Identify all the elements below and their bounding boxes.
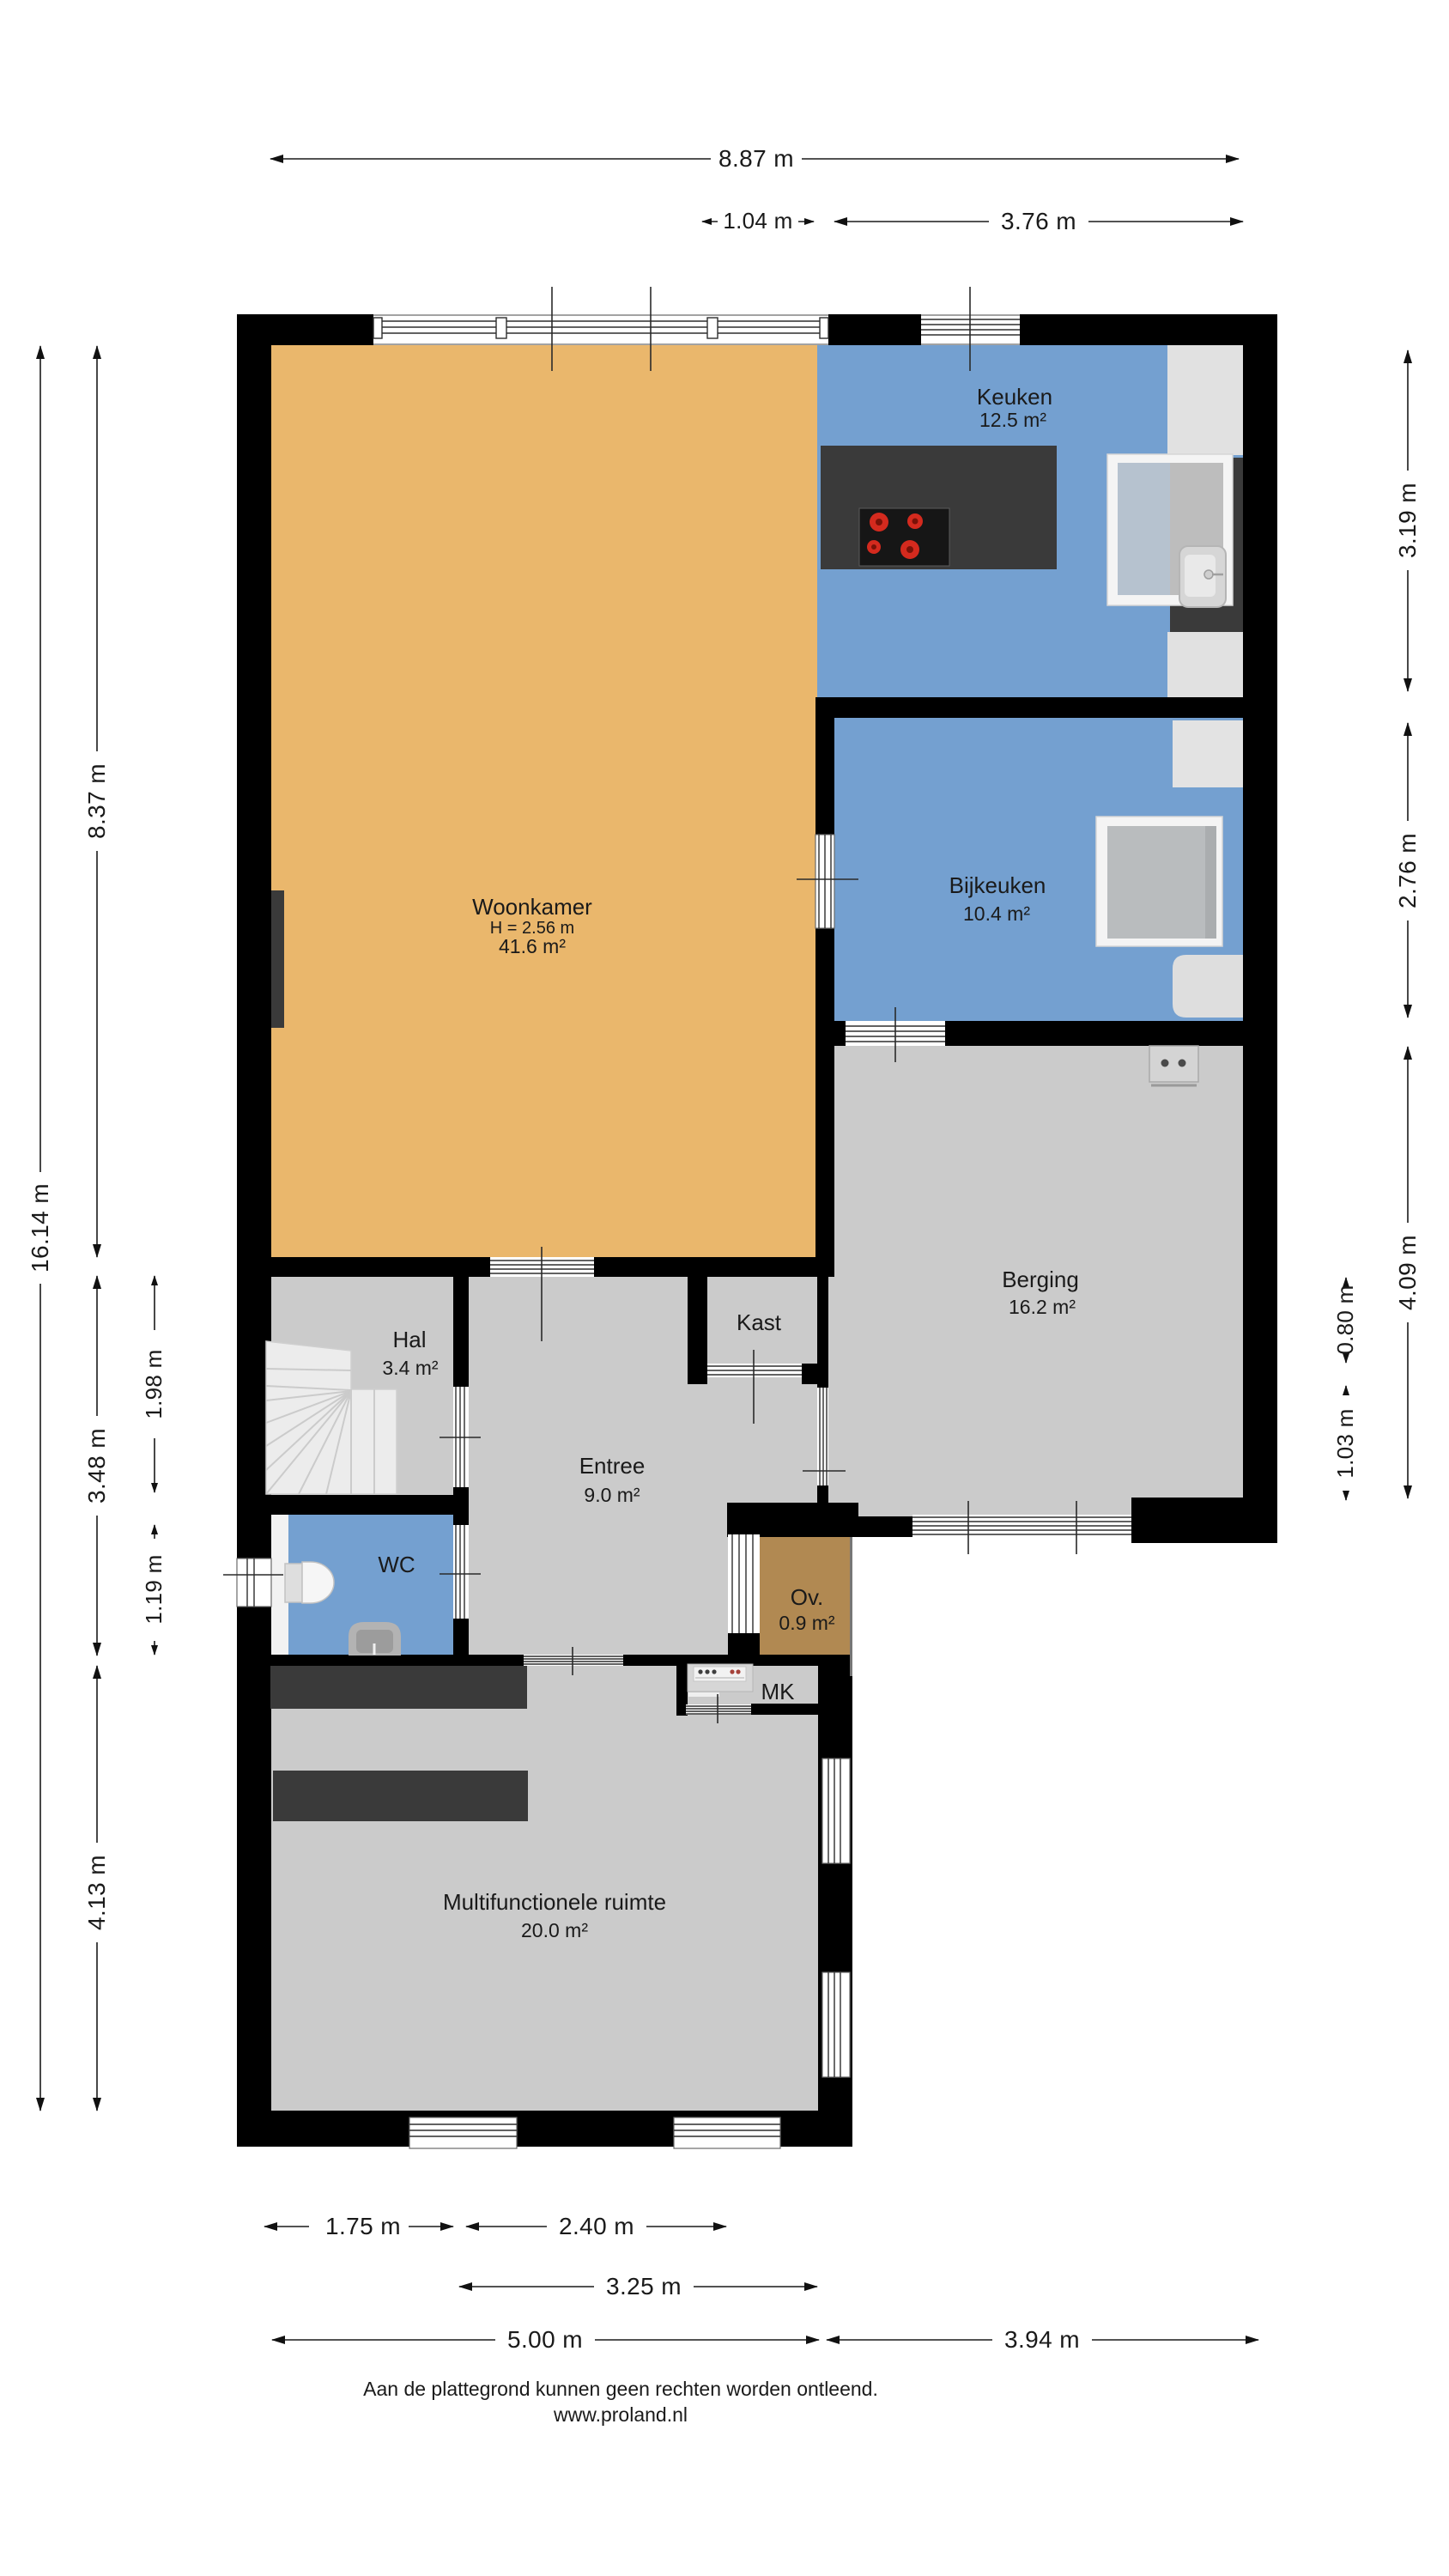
- svg-text:12.5 m²: 12.5 m²: [979, 409, 1046, 431]
- svg-text:2.40 m: 2.40 m: [559, 2213, 634, 2239]
- svg-text:1.03 m: 1.03 m: [1332, 1408, 1358, 1478]
- svg-text:www.proland.nl: www.proland.nl: [553, 2403, 688, 2426]
- svg-text:16.2 m²: 16.2 m²: [1009, 1296, 1076, 1318]
- svg-text:3.25 m: 3.25 m: [606, 2273, 682, 2300]
- svg-text:Keuken: Keuken: [977, 384, 1052, 410]
- svg-text:Bijkeuken: Bijkeuken: [949, 872, 1046, 898]
- svg-text:3.94 m: 3.94 m: [1004, 2326, 1080, 2353]
- svg-text:3.48 m: 3.48 m: [83, 1428, 110, 1504]
- svg-text:3.4 m²: 3.4 m²: [382, 1357, 439, 1379]
- svg-text:2.76 m: 2.76 m: [1394, 833, 1421, 908]
- svg-text:Woonkamer: Woonkamer: [472, 894, 592, 920]
- svg-text:1.75 m: 1.75 m: [325, 2213, 401, 2239]
- svg-text:20.0 m²: 20.0 m²: [521, 1919, 588, 1941]
- svg-text:16.14 m: 16.14 m: [27, 1183, 53, 1273]
- svg-text:Hal: Hal: [392, 1327, 426, 1352]
- svg-text:1.98 m: 1.98 m: [141, 1349, 167, 1419]
- svg-text:3.19 m: 3.19 m: [1394, 483, 1421, 558]
- svg-text:4.09 m: 4.09 m: [1394, 1235, 1421, 1310]
- svg-text:10.4 m²: 10.4 m²: [963, 902, 1030, 925]
- svg-text:4.13 m: 4.13 m: [83, 1855, 110, 1930]
- svg-text:Aan de plattegrond kunnen geen: Aan de plattegrond kunnen geen rechten w…: [363, 2378, 878, 2400]
- svg-text:41.6 m²: 41.6 m²: [499, 935, 566, 957]
- svg-text:8.87 m: 8.87 m: [718, 145, 794, 172]
- svg-text:3.76 m: 3.76 m: [1001, 208, 1076, 234]
- svg-text:1.19 m: 1.19 m: [141, 1554, 167, 1624]
- svg-text:0.80 m: 0.80 m: [1332, 1285, 1358, 1354]
- svg-text:Multifunctionele ruimte: Multifunctionele ruimte: [443, 1889, 666, 1915]
- svg-text:Entree: Entree: [579, 1453, 646, 1479]
- svg-text:5.00 m: 5.00 m: [507, 2326, 583, 2353]
- svg-text:Ov.: Ov.: [791, 1584, 824, 1610]
- svg-text:WC: WC: [378, 1552, 415, 1577]
- svg-text:Berging: Berging: [1002, 1267, 1079, 1292]
- svg-text:8.37 m: 8.37 m: [83, 763, 110, 839]
- svg-text:9.0 m²: 9.0 m²: [584, 1484, 640, 1506]
- svg-text:1.04 m: 1.04 m: [723, 208, 792, 234]
- svg-text:0.9 m²: 0.9 m²: [779, 1612, 835, 1634]
- svg-text:MK: MK: [761, 1679, 796, 1704]
- svg-text:Kast: Kast: [737, 1309, 782, 1335]
